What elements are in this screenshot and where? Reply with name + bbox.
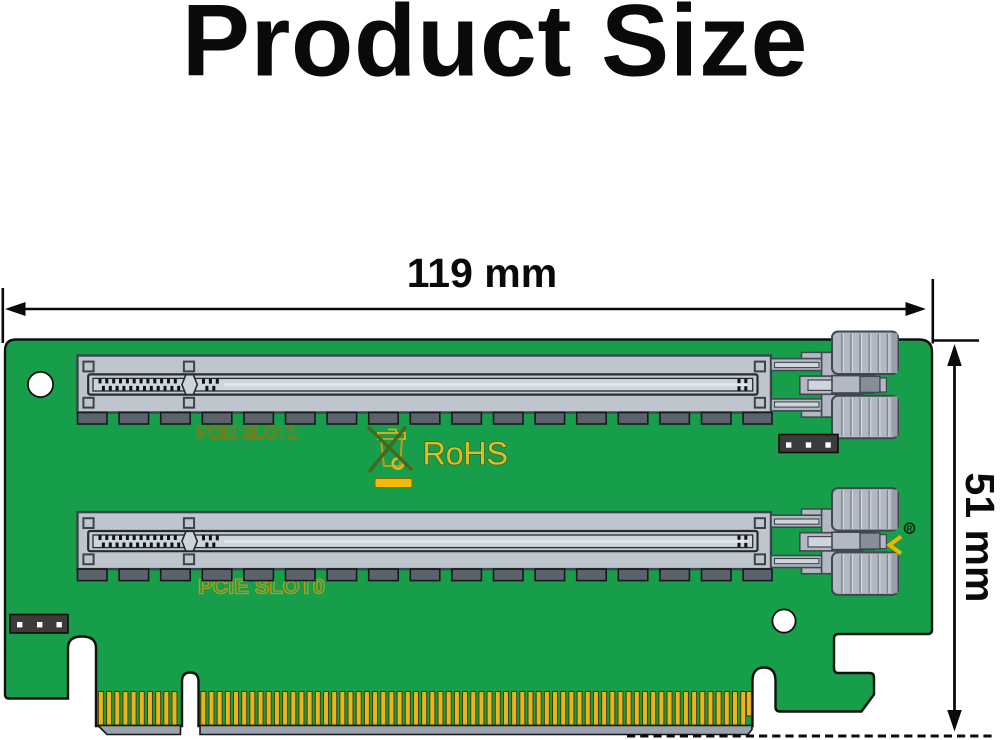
- svg-text:119 mm: 119 mm: [407, 250, 557, 296]
- svg-text:R: R: [907, 524, 913, 533]
- svg-text:RoHS: RoHS: [423, 436, 508, 472]
- svg-text:Product Size: Product Size: [182, 0, 808, 98]
- svg-text:PCIE SLOT1: PCIE SLOT1: [198, 422, 298, 444]
- svg-text:51 mm: 51 mm: [957, 473, 1000, 603]
